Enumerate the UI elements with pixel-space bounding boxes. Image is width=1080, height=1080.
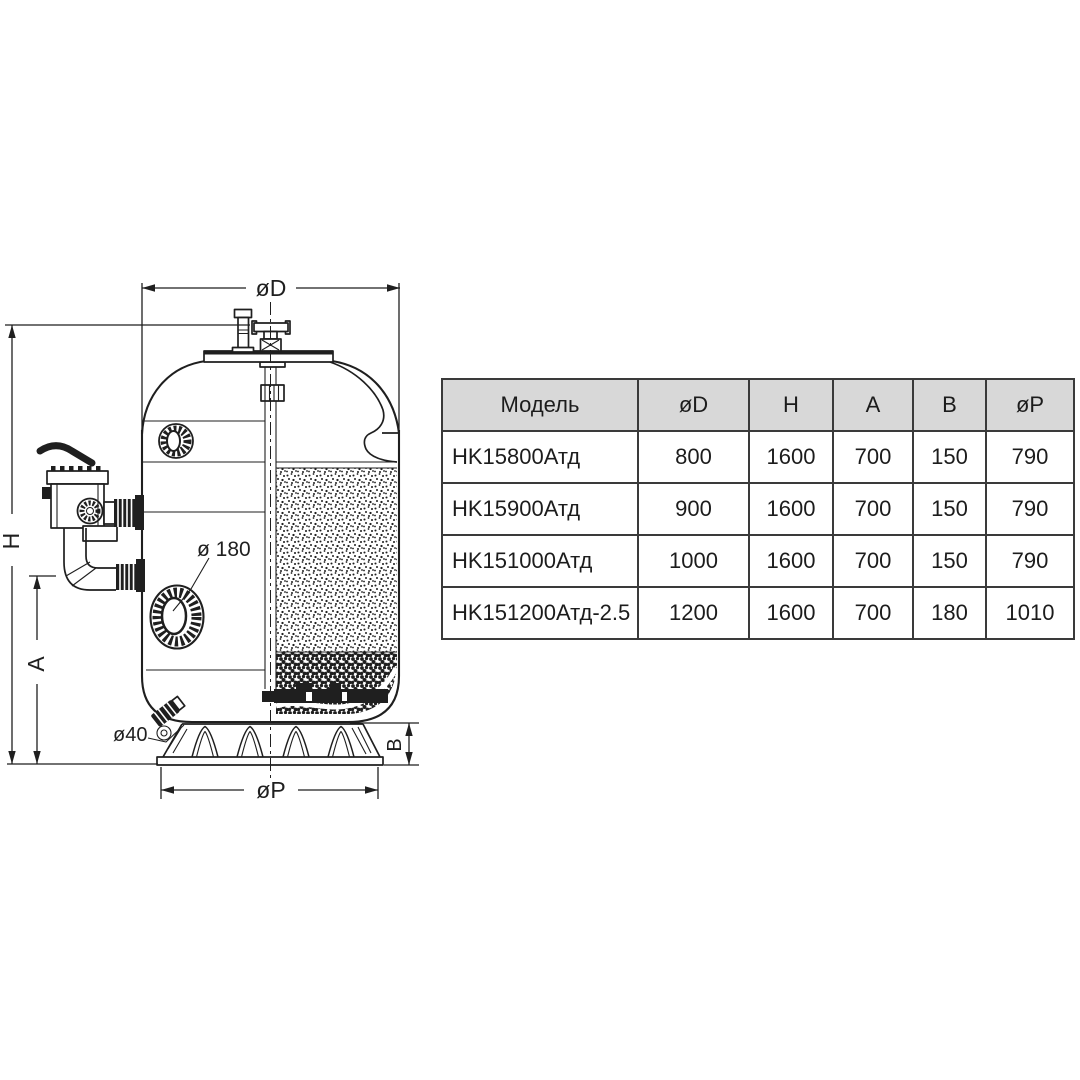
- model-cell: HK151000Атд: [442, 535, 638, 587]
- technical-sheet: ø 180: [0, 0, 1080, 1080]
- value-cell: 150: [913, 483, 986, 535]
- viewport-180: ø 180: [151, 538, 251, 649]
- dim-d-label: øD: [256, 275, 287, 301]
- col-header-b: B: [913, 379, 986, 431]
- dimension-base-diameter: øP: [161, 767, 378, 803]
- sand-media: [276, 468, 397, 652]
- table-header-row: Модель øD H A B øP: [442, 379, 1074, 431]
- value-cell: 150: [913, 535, 986, 587]
- drain-label: ø40: [113, 724, 147, 746]
- value-cell: 180: [913, 587, 986, 639]
- col-header-h: H: [749, 379, 833, 431]
- spec-table-grid: Модель øD H A B øP HK15800Атд 800 1600 7…: [441, 378, 1075, 640]
- value-cell: 1200: [638, 587, 749, 639]
- table-row: HK15800Атд 800 1600 700 150 790: [442, 431, 1074, 483]
- value-cell: 800: [638, 431, 749, 483]
- value-cell: 150: [913, 431, 986, 483]
- model-cell: HK15900Атд: [442, 483, 638, 535]
- col-header-a: A: [833, 379, 913, 431]
- value-cell: 700: [833, 483, 913, 535]
- multiport-valve: [40, 446, 145, 592]
- col-header-p: øP: [986, 379, 1074, 431]
- model-cell: HK15800Атд: [442, 431, 638, 483]
- value-cell: 1600: [749, 535, 833, 587]
- model-cell: HK151200Атд-2.5: [442, 587, 638, 639]
- dim-p-label: øP: [256, 777, 285, 803]
- value-cell: 1600: [749, 587, 833, 639]
- spec-table: Модель øD H A B øP HK15800Атд 800 1600 7…: [441, 378, 1075, 640]
- valve-handle: [40, 446, 92, 463]
- value-cell: 1600: [749, 483, 833, 535]
- dimension-inlet-height: A: [23, 576, 56, 764]
- value-cell: 790: [986, 535, 1074, 587]
- air-relief-valve: [233, 310, 254, 353]
- value-cell: 1010: [986, 587, 1074, 639]
- table-row: HK151000Атд 1000 1600 700 150 790: [442, 535, 1074, 587]
- table-row: HK151200Атд-2.5 1200 1600 700 180 1010: [442, 587, 1074, 639]
- value-cell: 1000: [638, 535, 749, 587]
- col-header-model: Модель: [442, 379, 638, 431]
- value-cell: 790: [986, 483, 1074, 535]
- value-cell: 1600: [749, 431, 833, 483]
- dim-a-label: A: [23, 656, 49, 672]
- value-cell: 900: [638, 483, 749, 535]
- value-cell: 700: [833, 431, 913, 483]
- value-cell: 700: [833, 535, 913, 587]
- value-cell: 700: [833, 587, 913, 639]
- col-header-d: øD: [638, 379, 749, 431]
- value-cell: 790: [986, 431, 1074, 483]
- dim-b-label: B: [384, 738, 406, 751]
- dim-h-label: H: [0, 533, 24, 550]
- sight-glass: [159, 424, 193, 458]
- table-row: HK15900Атд 900 1600 700 150 790: [442, 483, 1074, 535]
- viewport-label: ø 180: [197, 538, 251, 561]
